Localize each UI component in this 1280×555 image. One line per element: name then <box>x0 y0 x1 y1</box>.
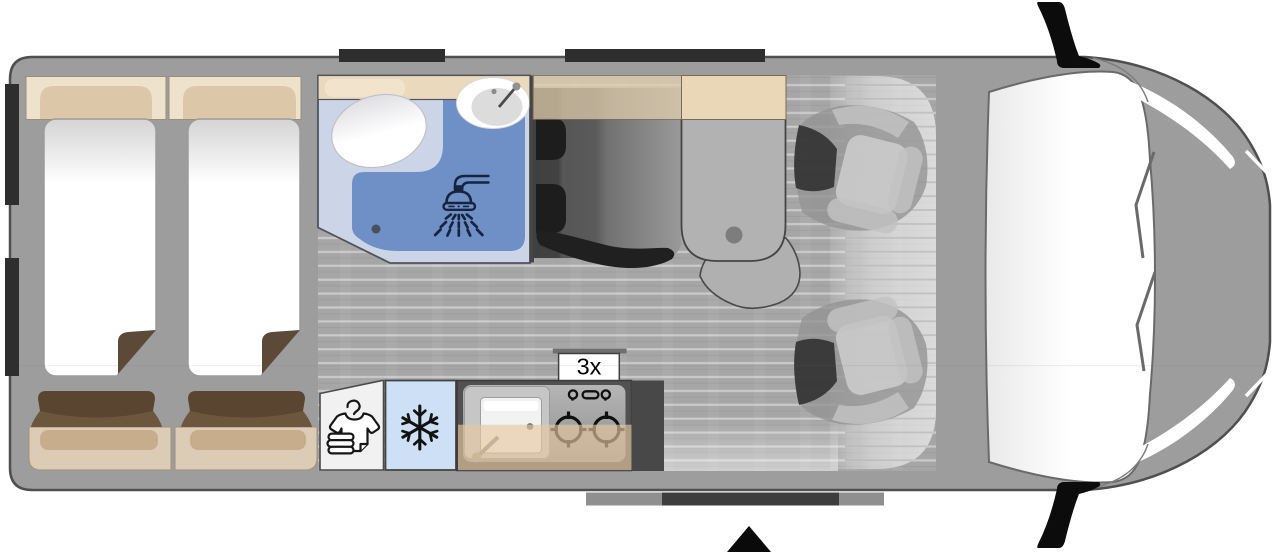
svg-text:3x: 3x <box>577 354 602 380</box>
